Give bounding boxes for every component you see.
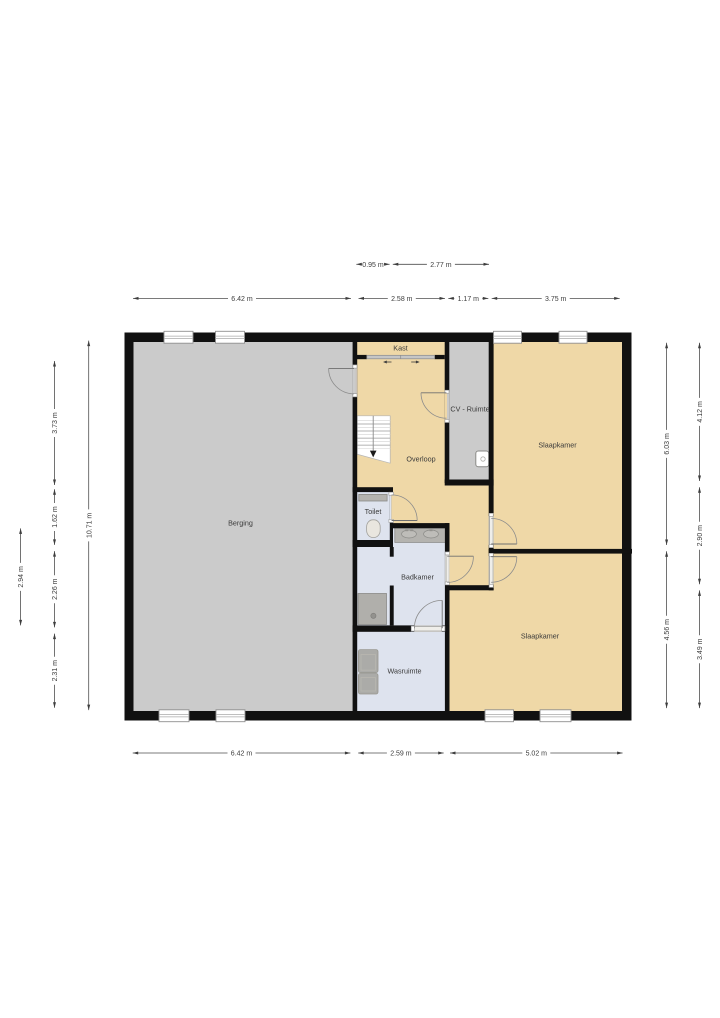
svg-text:10.71 m: 10.71 m: [86, 513, 93, 538]
svg-text:3.49 m: 3.49 m: [697, 638, 704, 660]
svg-text:Kast: Kast: [393, 343, 407, 352]
svg-text:CV - Ruimte: CV - Ruimte: [450, 404, 489, 413]
svg-text:4.56 m: 4.56 m: [664, 619, 671, 641]
svg-text:2.26 m: 2.26 m: [52, 578, 59, 600]
svg-text:2.90 m: 2.90 m: [697, 525, 704, 547]
svg-text:2.77 m: 2.77 m: [430, 262, 452, 269]
svg-text:2.58 m: 2.58 m: [391, 296, 413, 303]
svg-text:2.31 m: 2.31 m: [52, 660, 59, 682]
svg-text:6.42 m: 6.42 m: [231, 296, 253, 303]
svg-text:6.03 m: 6.03 m: [664, 433, 671, 455]
svg-text:1.17 m: 1.17 m: [458, 296, 480, 303]
svg-text:Slaapkamer: Slaapkamer: [538, 441, 577, 450]
svg-text:4.12 m: 4.12 m: [697, 401, 704, 423]
svg-text:Badkamer: Badkamer: [401, 573, 434, 582]
svg-text:2.94 m: 2.94 m: [18, 566, 25, 588]
svg-text:3.75 m: 3.75 m: [545, 296, 567, 303]
svg-text:5.02 m: 5.02 m: [526, 751, 548, 758]
svg-text:Slaapkamer: Slaapkamer: [521, 632, 560, 641]
svg-text:2.59 m: 2.59 m: [390, 751, 412, 758]
svg-text:Toilet: Toilet: [365, 507, 382, 516]
svg-text:3.73 m: 3.73 m: [52, 412, 59, 434]
svg-text:1.62 m: 1.62 m: [52, 506, 59, 528]
svg-text:0.95 m: 0.95 m: [362, 262, 384, 269]
svg-text:Berging: Berging: [228, 519, 253, 528]
svg-text:6.42 m: 6.42 m: [231, 751, 253, 758]
svg-text:Overloop: Overloop: [406, 455, 435, 464]
svg-text:Wasruimte: Wasruimte: [387, 667, 421, 676]
